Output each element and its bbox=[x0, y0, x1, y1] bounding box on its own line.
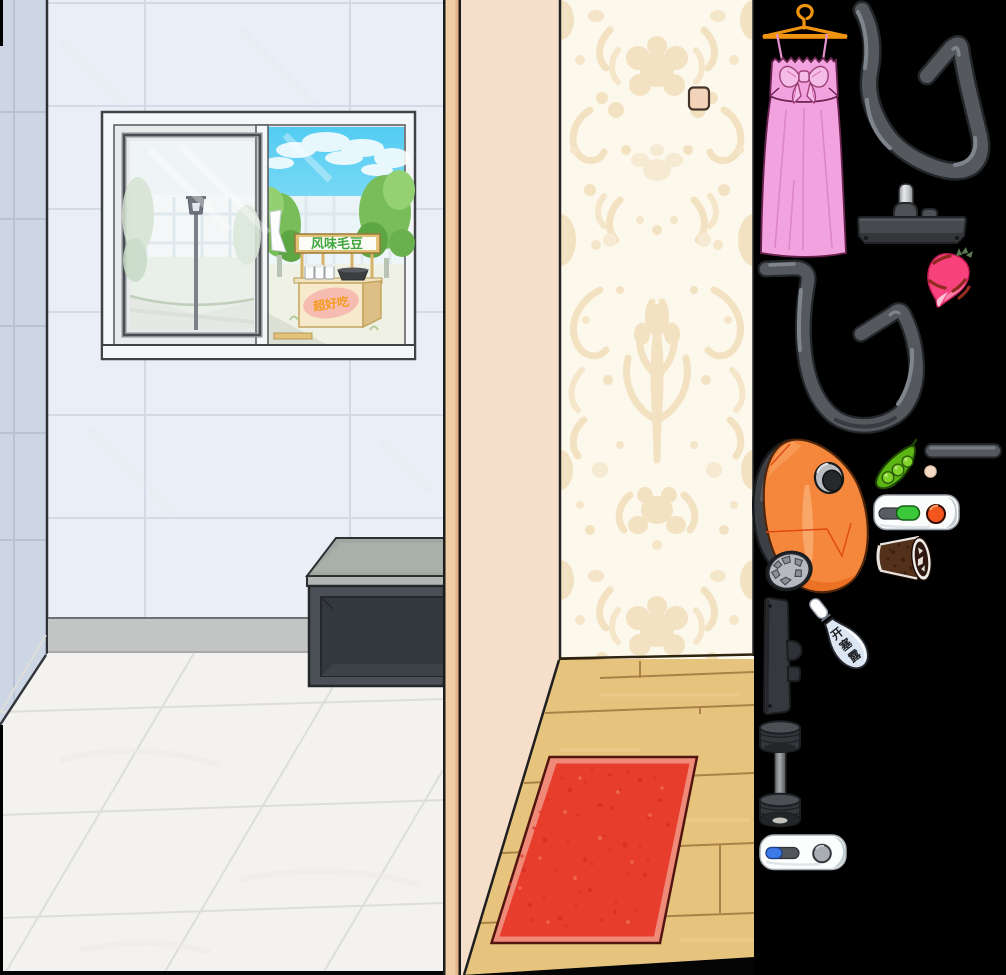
svg-text:风味毛豆: 风味毛豆 bbox=[311, 236, 363, 251]
